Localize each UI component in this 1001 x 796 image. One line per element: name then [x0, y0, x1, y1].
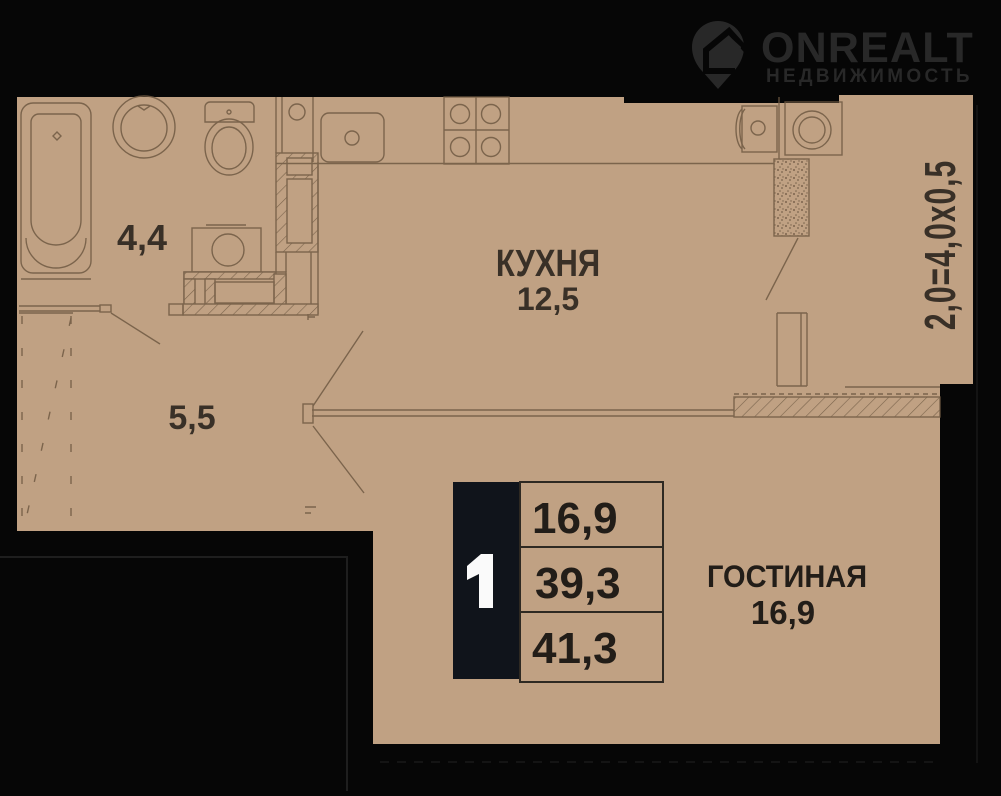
- svg-text:16,9: 16,9: [532, 494, 618, 543]
- svg-text:12,5: 12,5: [517, 281, 579, 317]
- svg-text:4,4: 4,4: [117, 217, 167, 258]
- svg-text:39,3: 39,3: [535, 559, 621, 608]
- svg-text:5,5: 5,5: [168, 399, 215, 437]
- svg-text:41,3: 41,3: [532, 624, 618, 673]
- svg-text:ONREALT: ONREALT: [761, 24, 974, 72]
- svg-text:ГОСТИНАЯ: ГОСТИНАЯ: [707, 559, 867, 595]
- svg-text:КУХНЯ: КУХНЯ: [496, 243, 600, 285]
- svg-text:16,9: 16,9: [751, 594, 815, 631]
- svg-text:2,0=4,0х0,5: 2,0=4,0х0,5: [915, 160, 964, 330]
- svg-text:НЕДВИЖИМОСТЬ: НЕДВИЖИМОСТЬ: [766, 66, 973, 87]
